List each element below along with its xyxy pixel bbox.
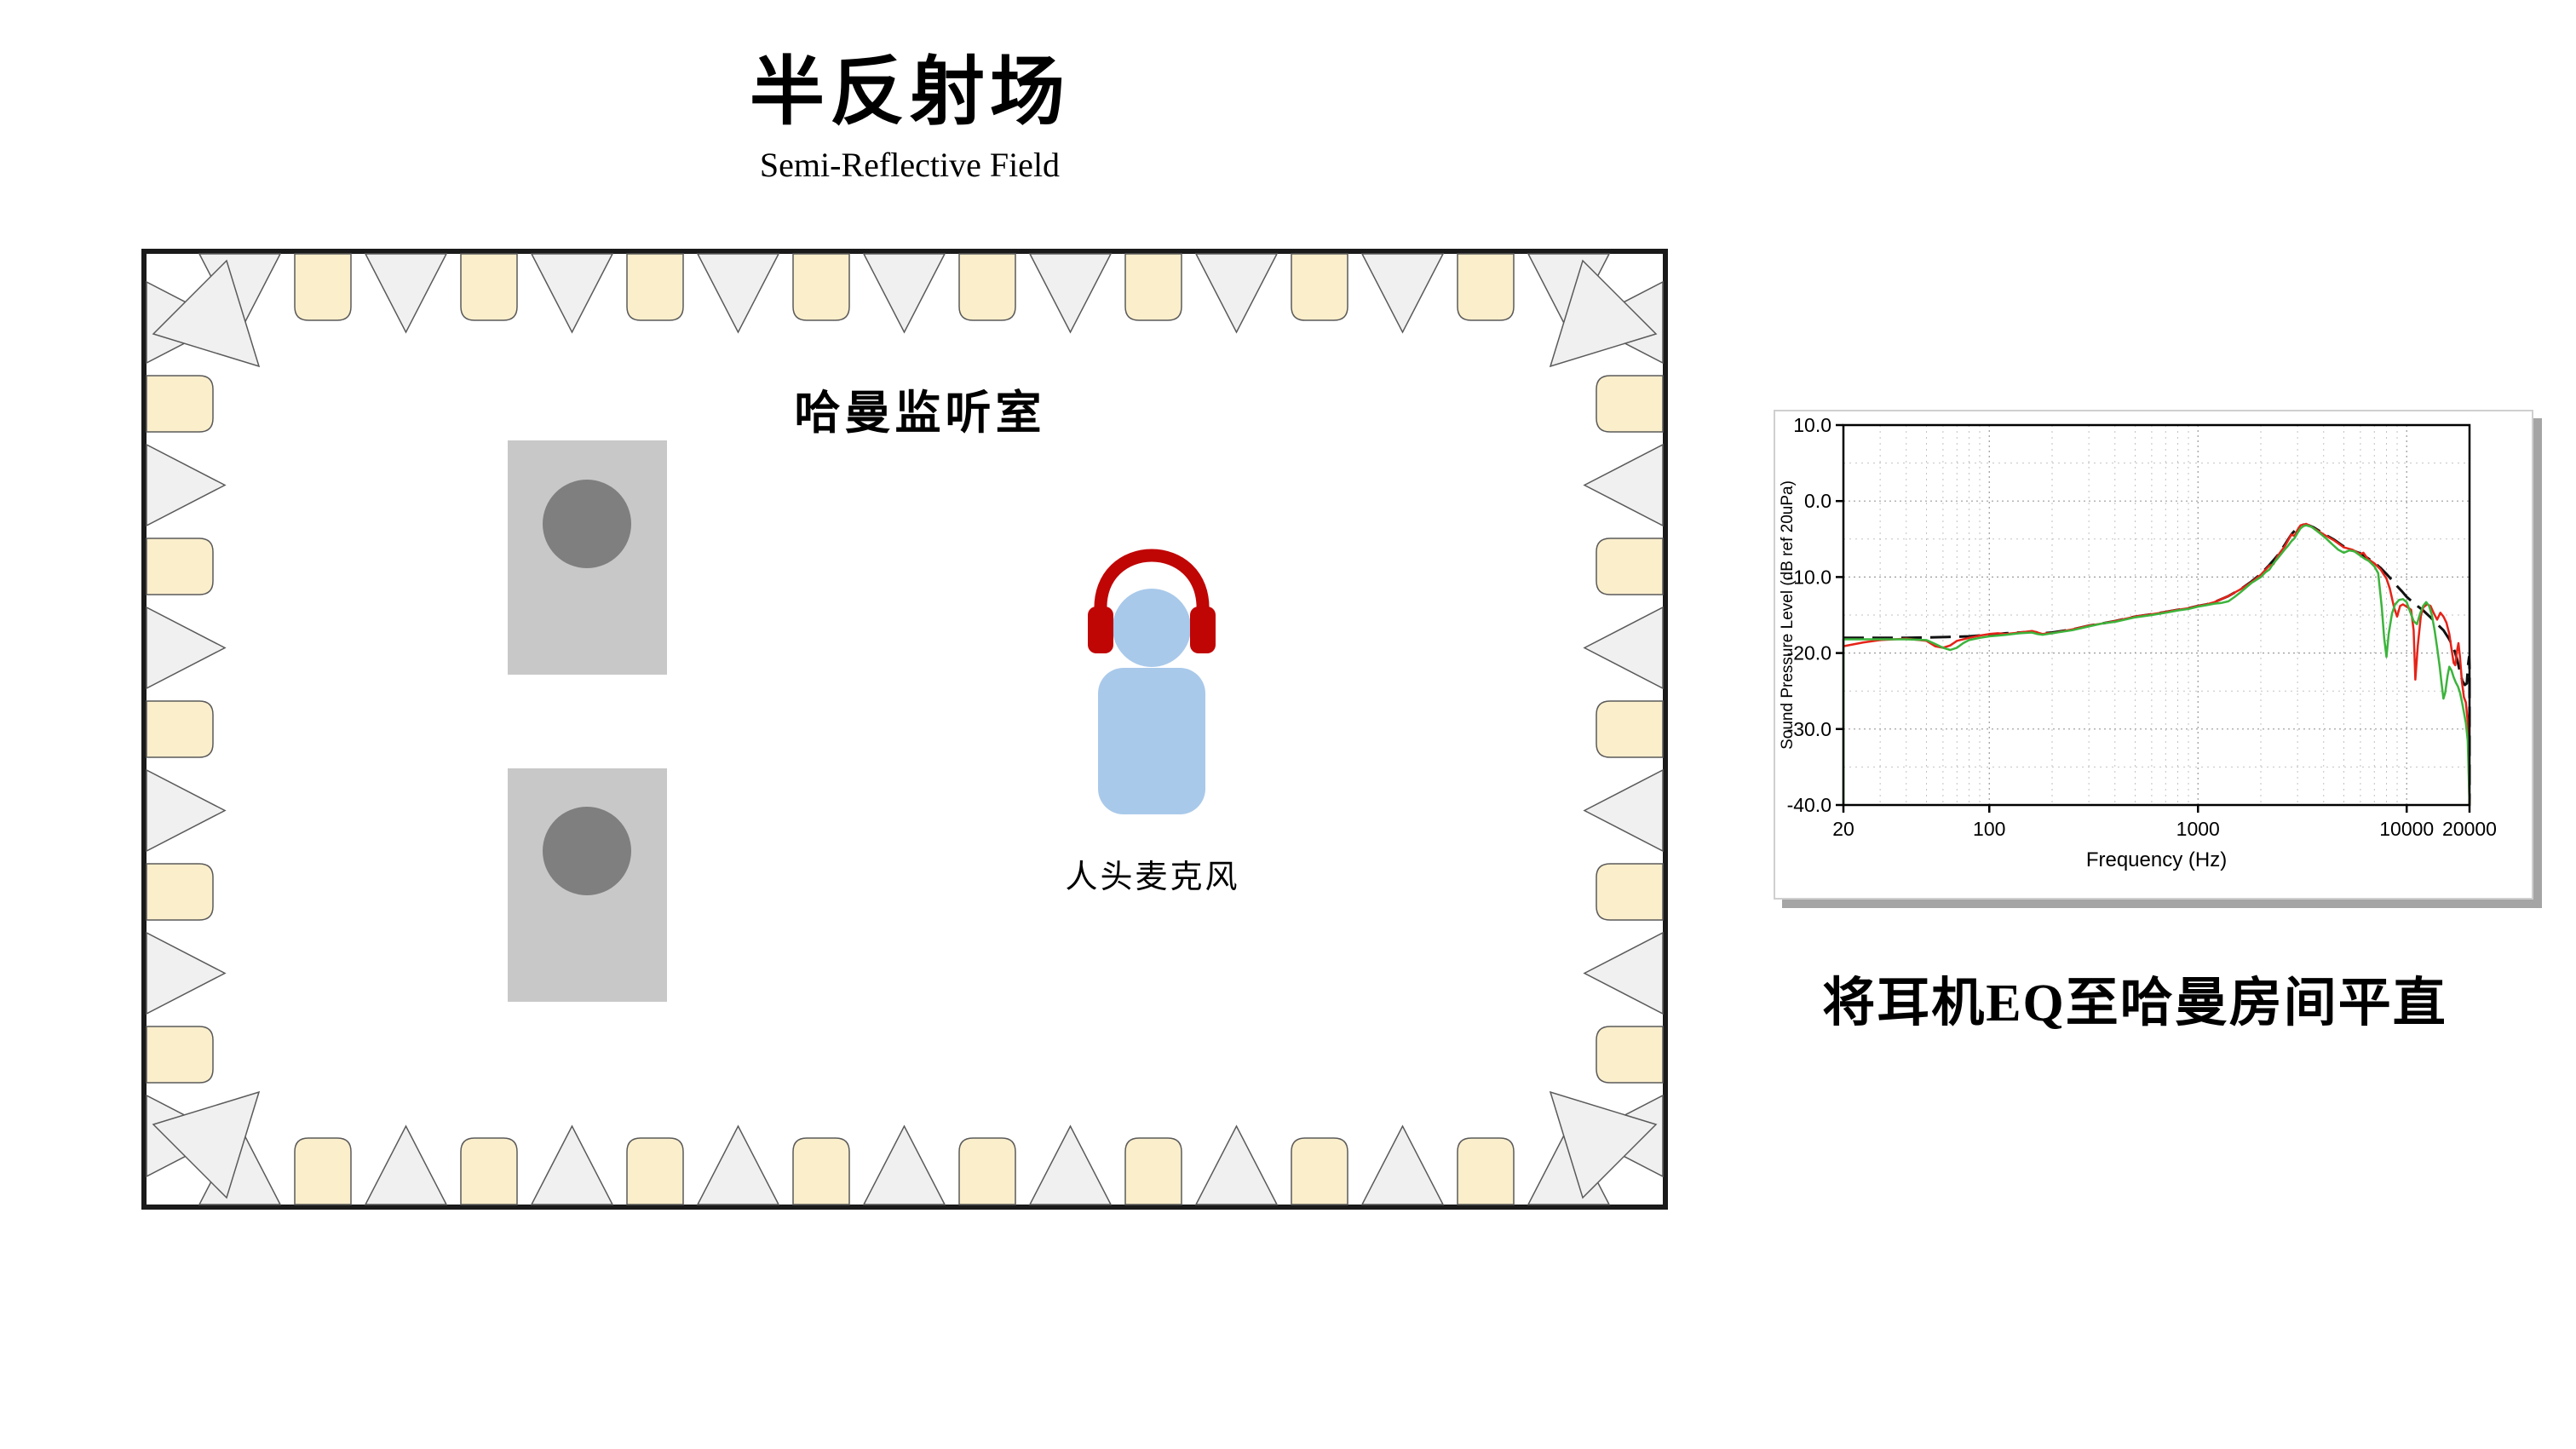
- absorber-right: [1596, 1026, 1663, 1083]
- person-head: [1113, 589, 1191, 667]
- absorber-bottom: [793, 1138, 849, 1205]
- x-tick-label: 1000: [2176, 818, 2220, 840]
- x-tick-label: 100: [1973, 818, 2005, 840]
- mic-label: 人头麦克风: [991, 850, 1314, 897]
- absorber-top: [627, 254, 683, 320]
- x-tick-label: 20000: [2442, 818, 2497, 840]
- absorber-top: [1291, 254, 1348, 320]
- headphone-earcup-left-icon: [1088, 607, 1113, 653]
- y-tick-label: -40.0: [1787, 794, 1831, 816]
- absorber-bottom: [1458, 1138, 1514, 1205]
- absorber-right: [1596, 701, 1663, 757]
- chart-curves: [1843, 524, 2470, 805]
- absorber-right: [1596, 864, 1663, 920]
- room-label: 哈曼监听室: [750, 375, 1090, 442]
- headphone-earcup-right-icon: [1190, 607, 1216, 653]
- absorber-bottom: [959, 1138, 1015, 1205]
- absorber-left: [147, 376, 213, 432]
- speaker-top-woofer: [543, 480, 631, 568]
- title-block: 半反射场 Semi-Reflective Field: [458, 49, 1361, 186]
- absorber-right: [1596, 376, 1663, 432]
- speaker-bottom: [508, 768, 667, 1002]
- absorber-top: [295, 254, 351, 320]
- x-tick-label: 10000: [2379, 818, 2434, 840]
- absorber-left: [147, 864, 213, 920]
- curve-measured-green: [1843, 526, 2470, 805]
- y-tick-label: 0.0: [1804, 490, 1831, 512]
- absorber-left: [147, 1026, 213, 1083]
- absorber-top: [959, 254, 1015, 320]
- speaker-bottom-woofer: [543, 807, 631, 895]
- frequency-response-chart: 201001000100002000010.00.0-10.0-20.0-30.…: [1775, 411, 2532, 898]
- curve-measured-red: [1843, 524, 2470, 805]
- chart-panel: 201001000100002000010.00.0-10.0-20.0-30.…: [1774, 410, 2533, 900]
- dummy-head-microphone: [1088, 555, 1216, 814]
- page-title: 半反射场: [458, 49, 1361, 138]
- x-tick-label: 20: [1832, 818, 1854, 840]
- absorber-bottom: [627, 1138, 683, 1205]
- absorber-right: [1596, 538, 1663, 595]
- absorber-bottom: [295, 1138, 351, 1205]
- absorber-top: [1125, 254, 1182, 320]
- absorber-top: [1458, 254, 1514, 320]
- absorber-bottom: [1291, 1138, 1348, 1205]
- x-axis-label: Frequency (Hz): [2086, 848, 2227, 871]
- absorber-bottom: [1125, 1138, 1182, 1205]
- chart-caption: 将耳机EQ至哈曼房间平直: [1751, 959, 2518, 1036]
- absorber-top: [461, 254, 517, 320]
- speaker-top: [508, 440, 667, 675]
- person-body: [1098, 668, 1205, 814]
- y-tick-label: 10.0: [1793, 414, 1831, 436]
- absorber-top: [793, 254, 849, 320]
- page-subtitle: Semi-Reflective Field: [458, 145, 1361, 186]
- absorber-left: [147, 538, 213, 595]
- y-axis-label: Sound Pressure Level (dB ref 20uPa): [1779, 480, 1797, 750]
- absorber-left: [147, 701, 213, 757]
- absorber-bottom: [461, 1138, 517, 1205]
